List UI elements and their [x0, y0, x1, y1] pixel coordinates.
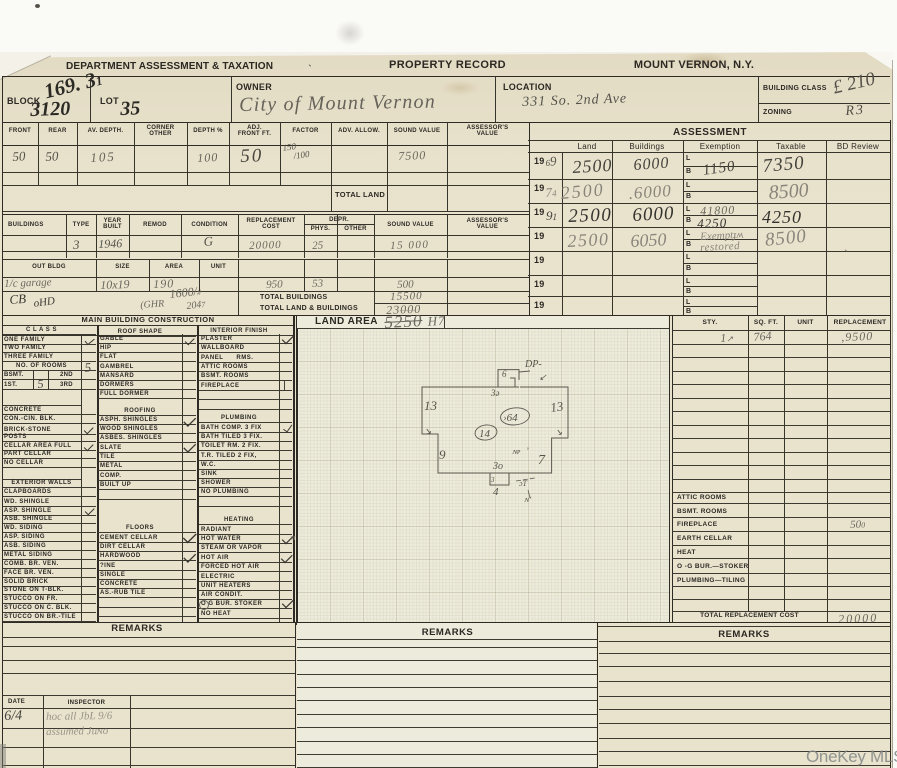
svg-text:›64: ›64: [503, 412, 518, 424]
svg-text:7: 7: [538, 453, 546, 468]
svg-text:DP-: DP-: [524, 359, 542, 370]
svg-text:9: 9: [439, 447, 446, 462]
svg-text:4: 4: [493, 486, 499, 498]
svg-text:13: 13: [549, 398, 564, 415]
svg-text:14: 14: [479, 428, 491, 440]
svg-text:↘: ↘: [424, 426, 432, 436]
svg-text:6: 6: [502, 369, 507, 379]
svg-text:ɴ‘: ɴ‘: [524, 495, 532, 504]
svg-text:’: ’: [526, 446, 529, 455]
svg-text:ɴᴘ: ɴᴘ: [512, 447, 521, 456]
svg-text:3: 3: [490, 476, 495, 484]
svg-text:↘: ↘: [555, 427, 563, 437]
svg-text:3o: 3o: [492, 461, 503, 472]
svg-text:3ə: 3ə: [490, 388, 500, 398]
svg-text:↙: ↙: [539, 372, 547, 382]
svg-text:13: 13: [424, 398, 438, 413]
